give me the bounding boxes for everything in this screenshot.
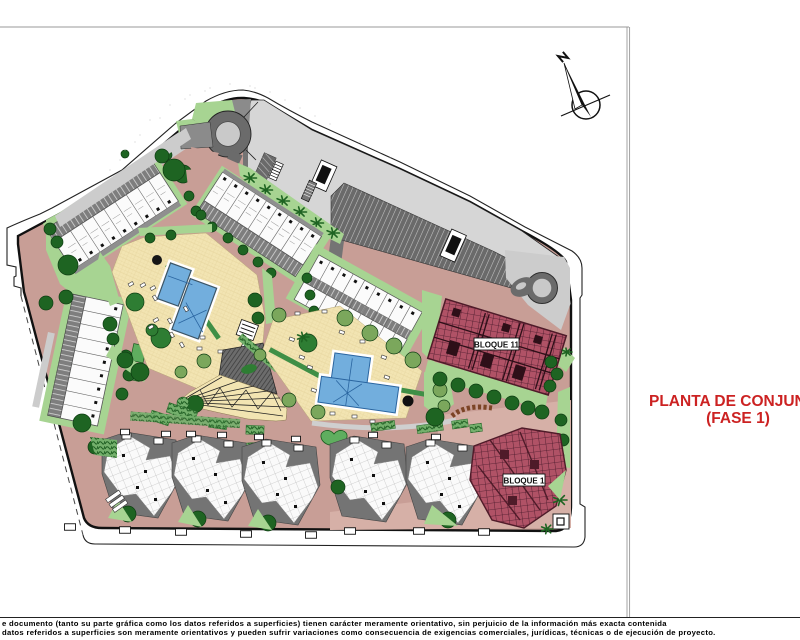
svg-text:BLOQUE 1: BLOQUE 1 [504, 477, 545, 486]
svg-text:BLOQUE 11: BLOQUE 11 [474, 341, 519, 350]
